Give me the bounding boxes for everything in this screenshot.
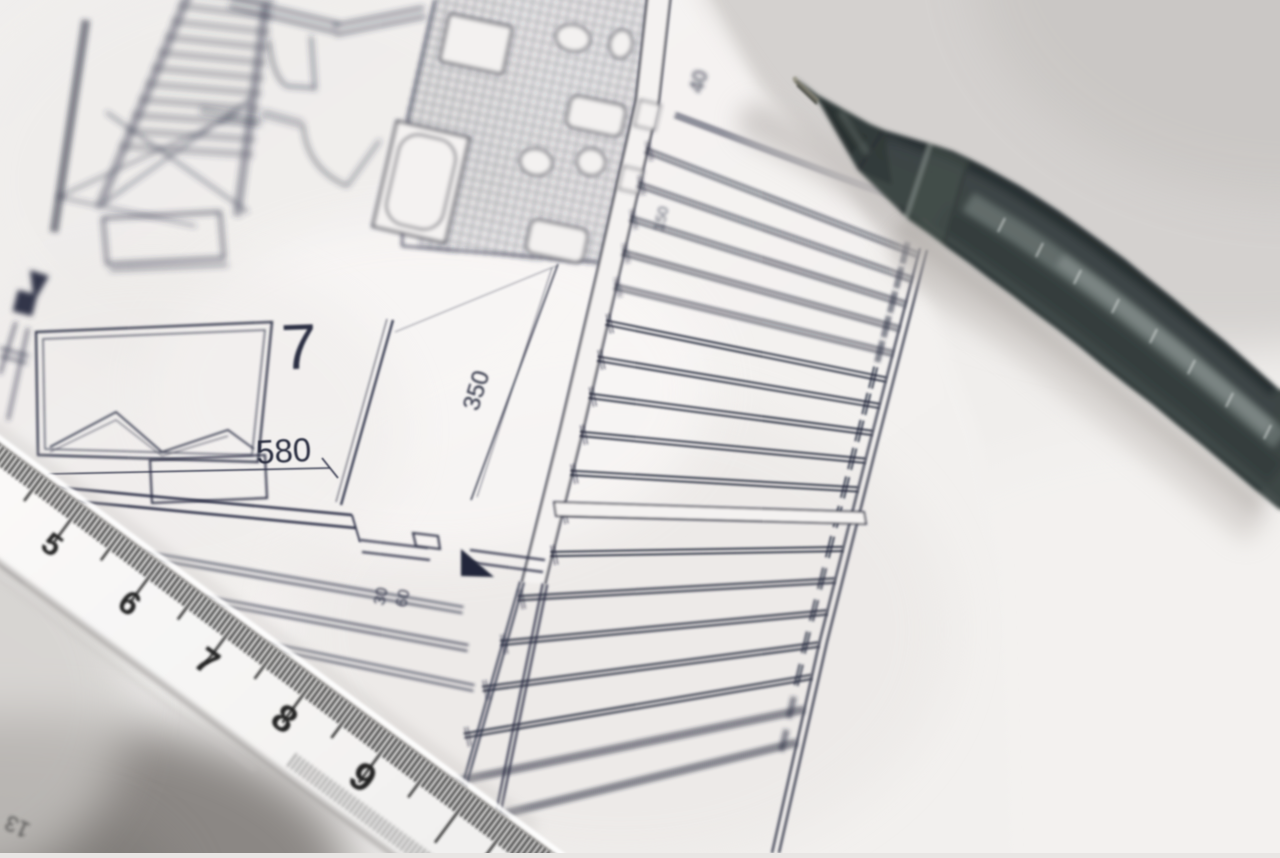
svg-text:30: 30 [371, 586, 391, 607]
svg-text:580: 580 [255, 431, 312, 471]
svg-text:7: 7 [280, 310, 318, 383]
